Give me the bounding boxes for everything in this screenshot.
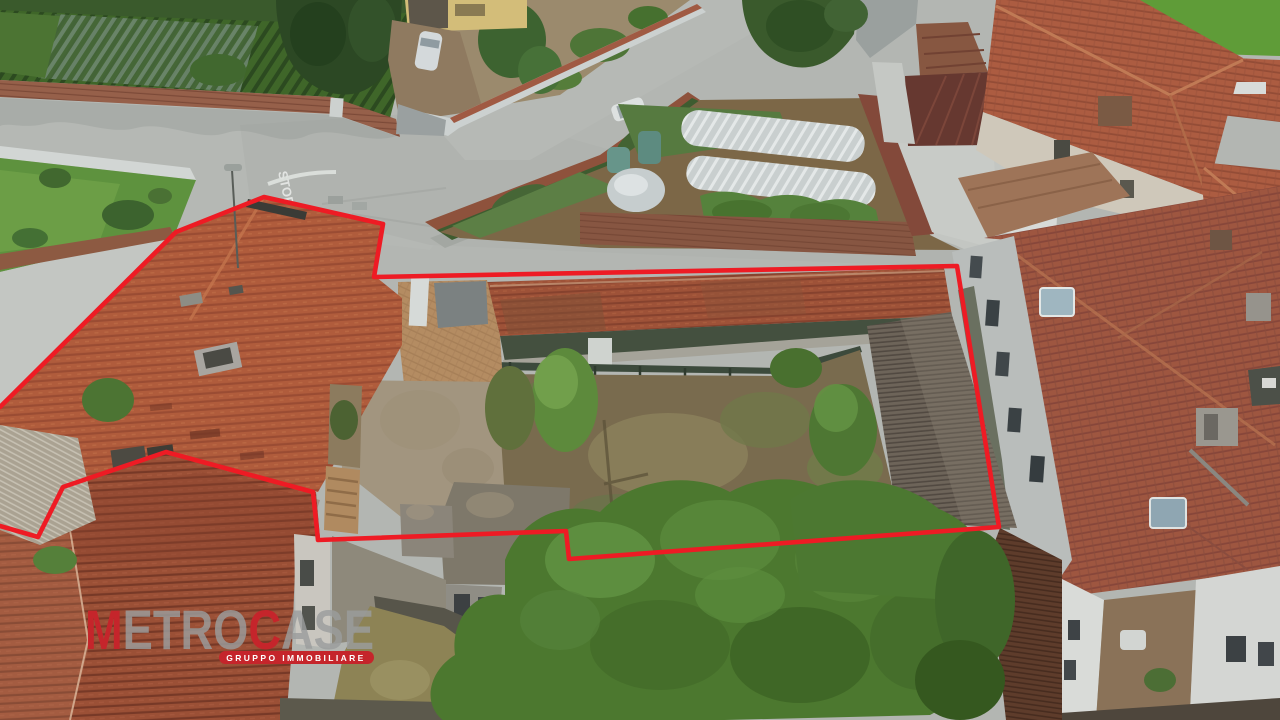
svg-text:GRUPPO IMMOBILIARE: GRUPPO IMMOBILIARE	[226, 653, 366, 663]
